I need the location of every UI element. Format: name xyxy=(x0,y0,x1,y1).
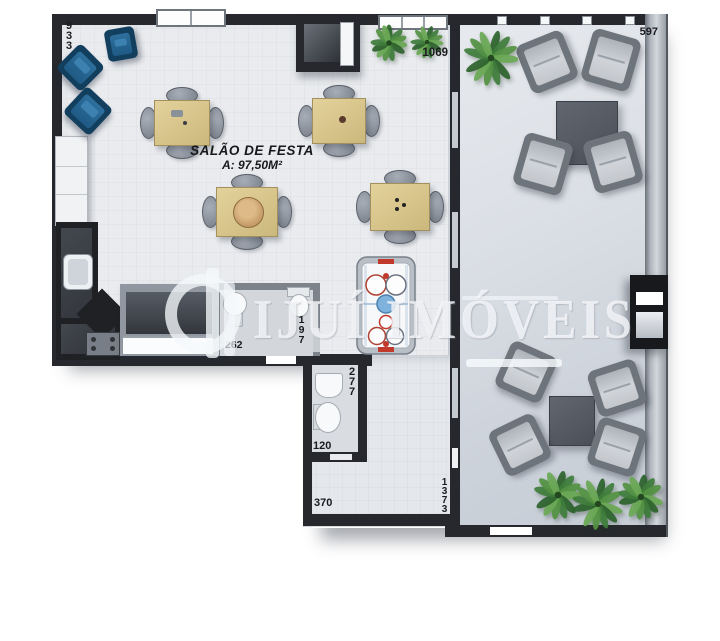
dimension-label: 1373 xyxy=(439,477,450,513)
room-title-block: SALÃO DE FESTA A: 97,50M² xyxy=(158,143,346,172)
bathroom-sink xyxy=(223,292,247,316)
barbecue-grill xyxy=(296,16,360,72)
dimension-label: 597 xyxy=(622,26,658,38)
dimension-label: 197 xyxy=(295,314,307,344)
divider-glass-panel xyxy=(452,92,458,148)
armchair xyxy=(103,26,138,63)
lounge-door-opening xyxy=(490,527,532,535)
bathroom1-wall xyxy=(213,283,220,356)
window-tick xyxy=(625,16,635,25)
stove xyxy=(86,332,120,356)
room-area: A: 97,50M² xyxy=(158,158,346,172)
room-title: SALÃO DE FESTA xyxy=(158,143,346,158)
bathroom-sink xyxy=(315,373,343,398)
dining-table xyxy=(312,98,366,144)
window-tick xyxy=(540,16,550,25)
serving-platter xyxy=(233,197,264,228)
dimension-label: 933 xyxy=(63,20,75,50)
dimension-label: 370 xyxy=(314,497,332,509)
window xyxy=(156,9,226,27)
grill-slot xyxy=(636,312,663,338)
window-tick xyxy=(497,16,507,25)
wall-bottom-lounge xyxy=(445,525,666,537)
dimension-label: 277 xyxy=(346,366,358,396)
window-tick xyxy=(582,16,592,25)
dining-set xyxy=(356,170,444,244)
toilet xyxy=(315,402,341,433)
dining-table xyxy=(370,183,430,231)
dimension-label: 262 xyxy=(225,340,243,352)
buffet-front xyxy=(123,336,215,354)
bath1-window xyxy=(266,356,296,364)
plant-icon xyxy=(464,28,518,88)
air-hockey-table xyxy=(356,256,416,355)
floor-plan: 933 1069 597 262 197 277 120 370 1373 SA… xyxy=(0,0,720,641)
divider-glass-panel xyxy=(452,368,458,418)
dining-set xyxy=(202,174,292,250)
grill-slot xyxy=(636,292,663,305)
dining-table xyxy=(154,100,210,146)
bathroom2-door xyxy=(330,454,352,460)
grill-panel xyxy=(340,22,354,66)
wall-grill-unit xyxy=(630,275,668,349)
kitchen-sink xyxy=(63,254,93,290)
buffet-top xyxy=(126,292,212,334)
plant-icon xyxy=(614,468,668,526)
wall-hall-left xyxy=(303,355,312,525)
dining-table xyxy=(216,187,278,237)
wall-hall-bottom xyxy=(303,514,453,526)
divider-opening xyxy=(452,448,458,468)
coffee-table xyxy=(549,396,595,446)
fridge-cabinet xyxy=(55,136,88,226)
bathroom1-door xyxy=(313,328,320,352)
buffet-counter xyxy=(120,284,218,356)
divider-glass-panel xyxy=(452,212,458,268)
dimension-label: 1069 xyxy=(404,47,448,60)
bathroom2-wall-right xyxy=(358,355,367,462)
grill-opening xyxy=(304,24,340,62)
dimension-label: 120 xyxy=(313,440,331,452)
